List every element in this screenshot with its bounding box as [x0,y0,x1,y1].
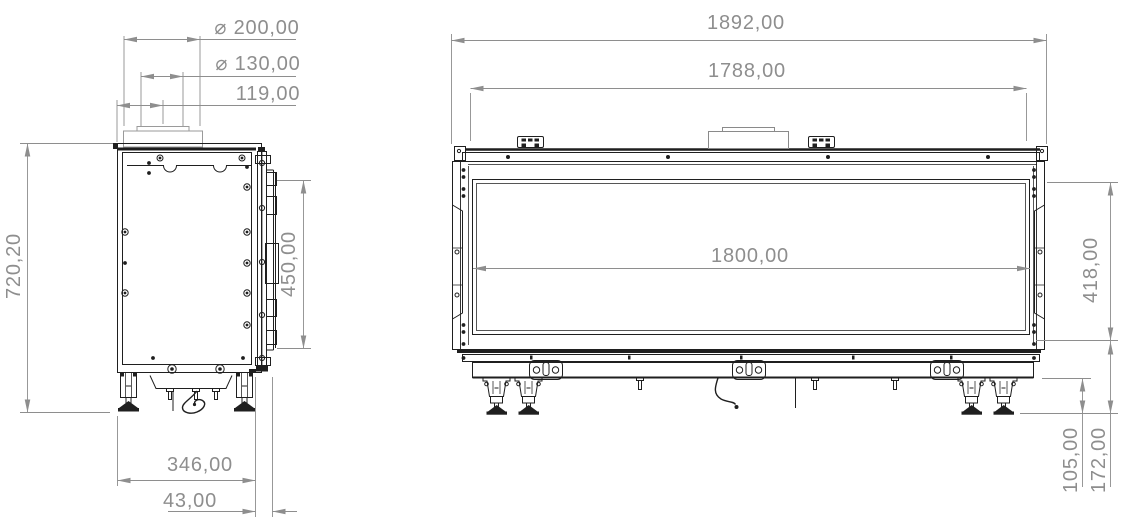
side-glass-frame [249,147,279,373]
gas-hose [182,391,204,413]
dim-flue-center-offset: 119,00 [236,84,301,104]
top-brackets [518,137,835,148]
front-view [453,128,1048,415]
technical-drawing-page: ⌀ 200,00 ⌀ 130,00 119,00 720,20 450,00 3… [0,0,1127,522]
side-view [113,127,279,414]
front-dimension-arrows [452,38,1114,414]
dim-body-depth: 346,00 [167,455,233,475]
front-legs [483,378,1017,415]
side-dimension-arrows [25,37,307,515]
dim-body-width: 1788,00 [708,61,786,81]
dim-glass-height-front: 418,00 [1081,234,1101,306]
dim-base-height: 172,00 [1089,424,1109,496]
side-legs [118,373,255,412]
dim-glass-width: 1800,00 [711,246,789,266]
dim-leg-height: 105,00 [1061,424,1081,496]
side-underside [150,376,232,414]
flue-box [709,128,789,149]
dim-overall-width: 1892,00 [707,13,785,33]
front-underside [637,378,899,410]
ignition-cable [715,378,735,405]
dim-overall-height: 720,20 [4,230,24,302]
dim-flue-inner-diameter: ⌀ 130,00 [215,54,300,74]
dim-glass-front-offset: 43,00 [163,491,217,511]
side-panel-screws [122,155,250,373]
dim-flue-outer-diameter: ⌀ 200,00 [214,18,299,38]
dim-glass-height-side: 450,00 [279,228,299,300]
side-view-dimension-lines [20,36,311,517]
drawing-canvas [0,0,1127,522]
